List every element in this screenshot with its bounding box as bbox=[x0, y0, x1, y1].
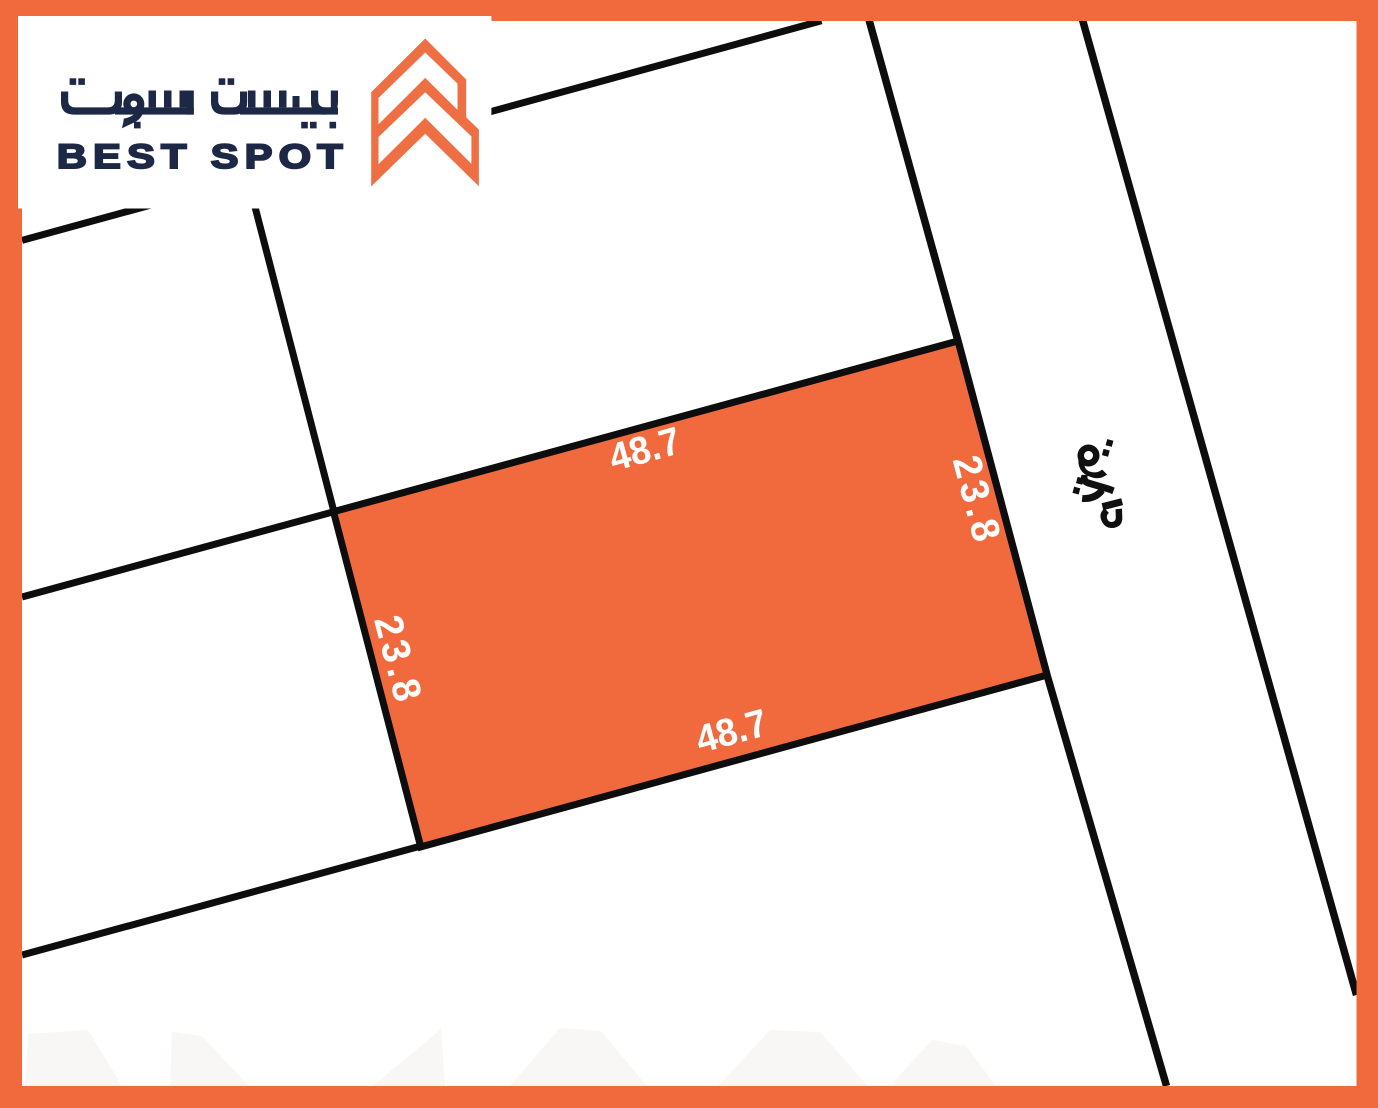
svg-text:BEST SPOT: BEST SPOT bbox=[57, 138, 349, 176]
